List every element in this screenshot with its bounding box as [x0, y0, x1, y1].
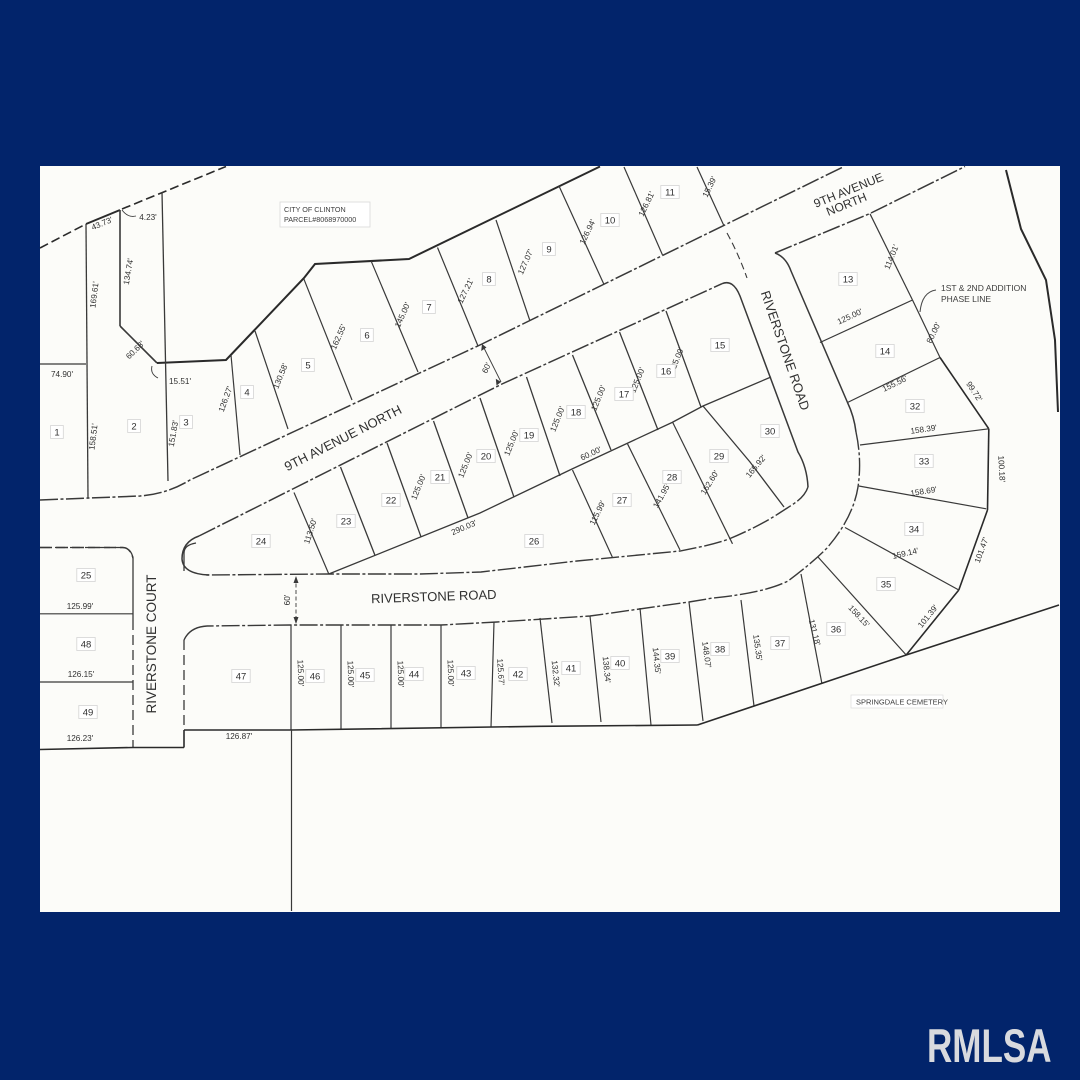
svg-text:48: 48	[81, 639, 92, 650]
svg-text:126.15': 126.15'	[68, 670, 95, 679]
svg-text:6: 6	[364, 330, 369, 341]
svg-text:74.90': 74.90'	[51, 370, 73, 379]
svg-text:100.18': 100.18'	[996, 455, 1006, 482]
svg-text:33: 33	[919, 456, 930, 467]
svg-text:151.83': 151.83'	[167, 419, 181, 447]
svg-text:132.32': 132.32'	[550, 660, 562, 688]
svg-text:18: 18	[571, 407, 582, 418]
svg-text:125.00': 125.00'	[549, 405, 567, 433]
svg-text:27: 27	[617, 495, 628, 506]
svg-text:131.18': 131.18'	[807, 618, 822, 646]
svg-text:32: 32	[910, 401, 921, 412]
svg-text:40: 40	[615, 658, 626, 669]
svg-text:11: 11	[665, 187, 675, 198]
svg-text:19: 19	[524, 430, 535, 441]
svg-text:21: 21	[435, 472, 446, 483]
svg-text:49: 49	[83, 707, 94, 718]
svg-text:125.00': 125.00'	[446, 659, 456, 686]
svg-text:46: 46	[310, 671, 321, 682]
svg-text:290.03': 290.03'	[450, 518, 478, 537]
svg-text:42: 42	[513, 669, 524, 680]
svg-text:RIVERSTONE ROAD: RIVERSTONE ROAD	[371, 587, 497, 606]
svg-text:30: 30	[765, 426, 776, 437]
svg-text:125.00': 125.00'	[410, 473, 428, 501]
svg-text:158.15': 158.15'	[846, 603, 871, 629]
svg-text:RIVERSTONE ROAD: RIVERSTONE ROAD	[758, 289, 813, 413]
svg-text:7: 7	[426, 302, 431, 313]
svg-text:127.21': 127.21'	[456, 277, 476, 305]
svg-text:47: 47	[236, 671, 247, 682]
svg-text:5: 5	[305, 360, 310, 371]
svg-text:38: 38	[715, 644, 726, 655]
svg-text:CITY OF CLINTON: CITY OF CLINTON	[284, 205, 346, 214]
svg-text:15.51': 15.51'	[169, 377, 191, 386]
svg-text:PARCEL#8068970000: PARCEL#8068970000	[284, 215, 356, 224]
svg-text:126.87': 126.87'	[226, 732, 253, 741]
svg-text:158.39': 158.39'	[910, 423, 938, 436]
svg-text:115.99': 115.99'	[588, 499, 608, 527]
svg-text:28: 28	[667, 472, 678, 483]
svg-text:114.01': 114.01'	[883, 243, 901, 271]
svg-text:125.00': 125.00'	[457, 451, 475, 479]
svg-text:29: 29	[714, 451, 725, 462]
svg-text:60': 60'	[283, 594, 292, 605]
svg-text:22: 22	[386, 495, 397, 506]
svg-text:155.56': 155.56'	[881, 374, 909, 394]
svg-text:10: 10	[605, 215, 616, 226]
svg-text:25: 25	[81, 570, 92, 581]
svg-text:130.58': 130.58'	[272, 362, 290, 390]
svg-text:127.07': 127.07'	[516, 248, 535, 276]
svg-text:126.94': 126.94'	[578, 218, 598, 246]
svg-text:113.50': 113.50'	[302, 517, 319, 545]
svg-text:126.23': 126.23'	[67, 734, 94, 743]
svg-text:125.00': 125.00'	[590, 384, 608, 412]
svg-text:99.72': 99.72'	[964, 380, 984, 404]
svg-text:43: 43	[461, 668, 472, 679]
svg-text:9: 9	[546, 244, 551, 255]
svg-text:37: 37	[775, 638, 786, 649]
svg-text:141.95': 141.95'	[651, 482, 672, 510]
svg-text:1: 1	[54, 427, 59, 438]
svg-text:14: 14	[880, 346, 891, 357]
svg-text:159.14': 159.14'	[891, 546, 919, 561]
svg-text:125.00': 125.00'	[346, 660, 356, 687]
svg-text:41: 41	[566, 663, 577, 674]
svg-text:169.61': 169.61'	[88, 281, 100, 309]
svg-text:125.00': 125.00'	[296, 659, 306, 686]
svg-text:125.00': 125.00'	[396, 660, 406, 687]
svg-text:16: 16	[661, 366, 672, 377]
svg-text:3: 3	[183, 417, 188, 428]
svg-text:8: 8	[486, 274, 491, 285]
svg-text:135.35': 135.35'	[751, 634, 764, 662]
svg-text:35: 35	[881, 579, 892, 590]
svg-text:125.99': 125.99'	[67, 602, 94, 611]
svg-text:PHASE LINE: PHASE LINE	[941, 294, 991, 304]
svg-text:15.39': 15.39'	[701, 175, 719, 199]
svg-text:24: 24	[256, 536, 267, 547]
svg-text:125.00': 125.00'	[503, 429, 521, 457]
svg-text:45: 45	[360, 670, 371, 681]
svg-text:2: 2	[131, 421, 136, 432]
svg-text:125.67': 125.67'	[495, 658, 506, 686]
svg-text:34: 34	[909, 524, 920, 535]
svg-text:17: 17	[619, 389, 630, 400]
svg-text:145.00': 145.00'	[393, 301, 412, 329]
svg-text:RIVERSTONE COURT: RIVERSTONE COURT	[144, 574, 159, 713]
svg-text:SPRINGDALE CEMETERY: SPRINGDALE CEMETERY	[856, 698, 948, 707]
svg-text:13: 13	[843, 274, 854, 285]
svg-text:158.69': 158.69'	[910, 485, 938, 498]
svg-text:4: 4	[244, 387, 249, 398]
svg-text:1ST & 2ND ADDITION: 1ST & 2ND ADDITION	[941, 283, 1026, 293]
svg-text:165.92': 165.92'	[744, 453, 768, 480]
svg-text:15: 15	[715, 340, 726, 351]
svg-text:134.74': 134.74'	[122, 257, 136, 285]
svg-text:101.47': 101.47'	[973, 536, 991, 564]
svg-text:23: 23	[341, 516, 352, 527]
svg-text:158.51': 158.51'	[87, 423, 99, 451]
svg-text:126.27': 126.27'	[217, 385, 235, 413]
svg-text:44: 44	[409, 669, 420, 680]
svg-text:39: 39	[665, 651, 676, 662]
svg-text:26: 26	[529, 536, 540, 547]
svg-text:162.55': 162.55'	[329, 323, 348, 351]
svg-text:20: 20	[481, 451, 492, 462]
svg-text:4.23': 4.23'	[139, 213, 157, 222]
svg-text:36: 36	[831, 624, 842, 635]
